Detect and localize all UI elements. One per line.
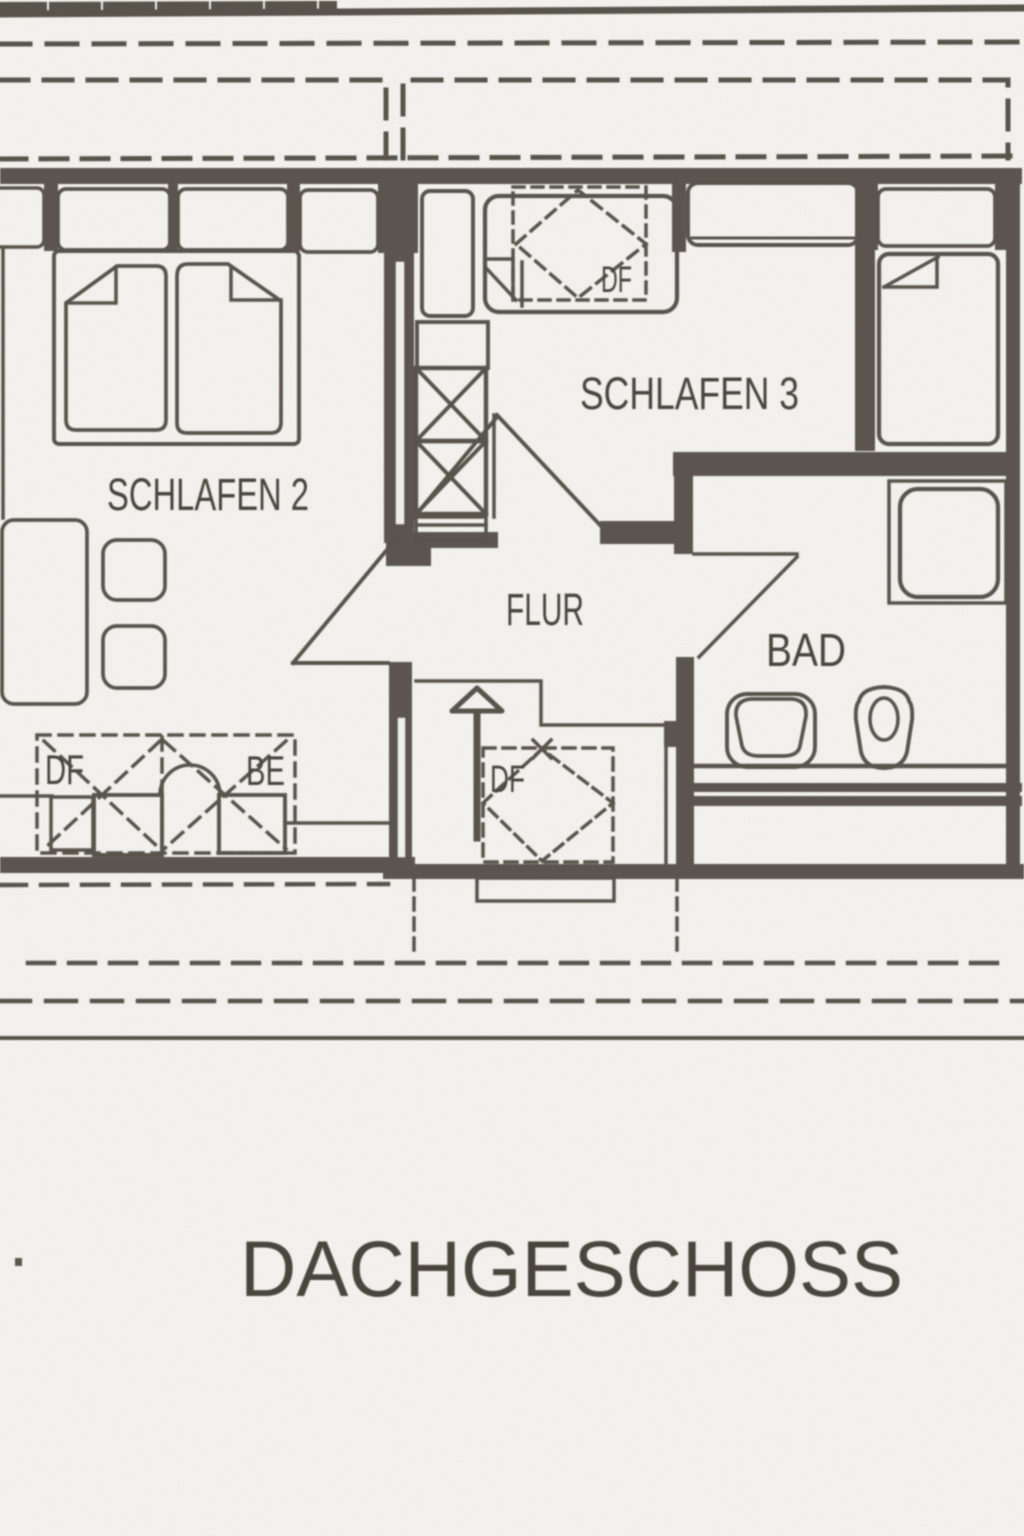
svg-text:BE: BE — [246, 747, 285, 794]
svg-text:DF: DF — [45, 746, 84, 793]
svg-text:SCHLAFEN 2: SCHLAFEN 2 — [107, 469, 309, 520]
svg-text:BAD: BAD — [766, 624, 846, 676]
svg-text:DF: DF — [601, 259, 632, 300]
svg-text:FLUR: FLUR — [506, 584, 584, 635]
svg-text:SCHLAFEN 3: SCHLAFEN 3 — [580, 368, 799, 419]
svg-text:DF: DF — [490, 759, 525, 801]
svg-text:DACHGESCHOSS: DACHGESCHOSS — [240, 1224, 903, 1313]
